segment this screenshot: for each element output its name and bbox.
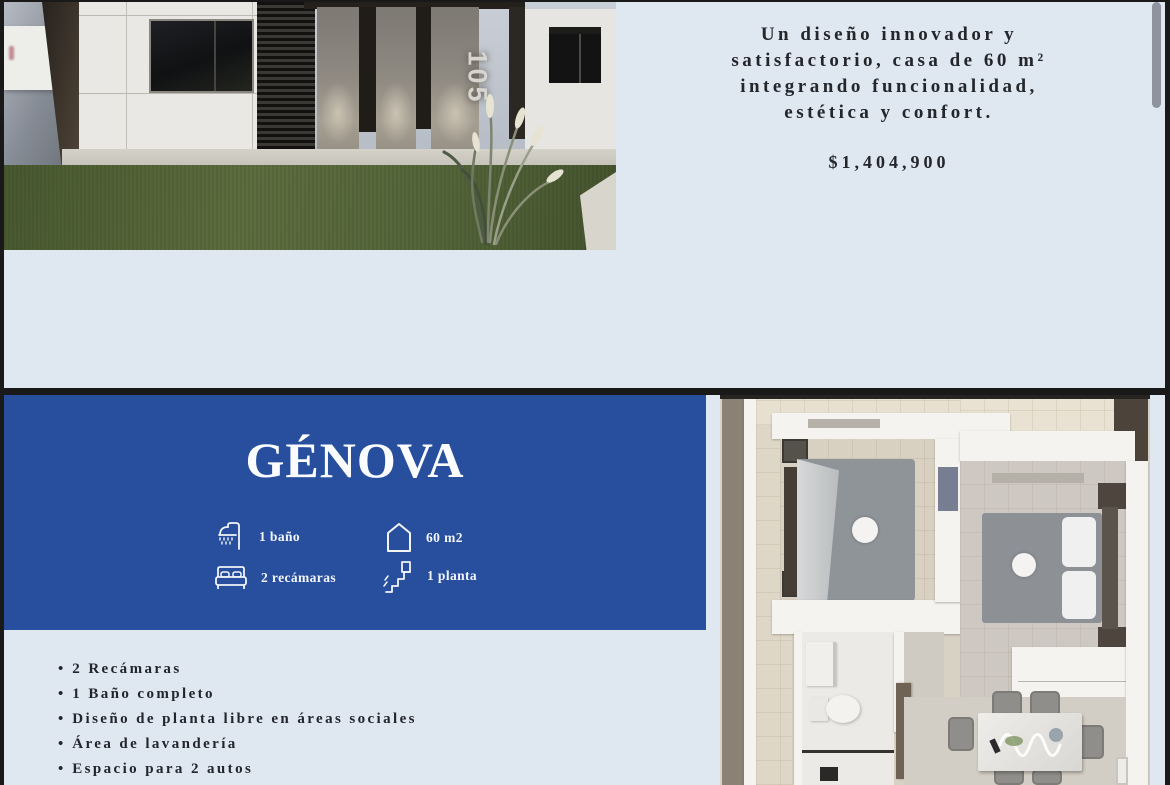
bedroom1-vent (808, 419, 880, 428)
feature-label: 1 baño (259, 529, 300, 545)
bullet-marker: • (58, 711, 63, 727)
exterior-wall-strip (722, 399, 744, 785)
bullet-item: •1 Baño completo (58, 686, 417, 702)
dining-chair (948, 717, 974, 751)
bullet-item: •Espacio para 2 autos (58, 761, 417, 777)
bullet-item: •Área de lavandería (58, 736, 417, 752)
bullet-text: Área de lavandería (72, 736, 237, 752)
bed2-pillow (1062, 517, 1096, 567)
house-icon (385, 522, 413, 554)
feature-floors: 1 planta (382, 558, 477, 594)
right-window (549, 27, 601, 83)
bed2-nightstand (1098, 483, 1128, 509)
kitchen-counter (1012, 647, 1134, 697)
bullet-item: •2 Recámaras (58, 661, 417, 677)
pillar-gap (359, 7, 376, 132)
pedestrian-figure (9, 46, 14, 60)
facade-panel-wall (79, 2, 261, 162)
concrete-pillar (317, 7, 359, 154)
screenshot-root: { "colors": { "accent_blue": "#274f9e", … (0, 0, 1170, 785)
headline-line: integrando funcionalidad, (652, 74, 1126, 100)
bed1-headboard (784, 467, 797, 595)
window-pane-divider (579, 34, 581, 83)
floor-plan-render (720, 395, 1150, 785)
bed2-pillow (1062, 571, 1096, 619)
outer-wall-left (744, 399, 756, 785)
panel-seam (126, 2, 127, 162)
entry-louvers (257, 2, 315, 149)
bed2-headboard (1102, 507, 1118, 629)
bullet-item: •Diseño de planta libre en áreas sociale… (58, 711, 417, 727)
headline-line: Un diseño innovador y (652, 22, 1126, 48)
toilet-bowl (826, 695, 860, 723)
ornamental-grass-plant (424, 92, 569, 250)
bed-icon (214, 563, 248, 593)
shower-icon (216, 521, 246, 553)
model-title: GÉNOVA (4, 431, 706, 489)
shower-glass (802, 750, 894, 753)
counter-seam (1018, 681, 1128, 682)
bathroom-vanity (806, 642, 836, 686)
feature-label: 1 planta (427, 568, 477, 584)
bullet-text: Diseño de planta libre en áreas sociales (72, 711, 417, 727)
window-pane-divider (214, 21, 216, 91)
bathroom-left-wall (794, 632, 802, 785)
model-header-panel: GÉNOVA 1 baño 60 m2 (4, 395, 706, 630)
brochure-page-1: 105 (4, 2, 1165, 388)
brochure-page-2: GÉNOVA 1 baño 60 m2 (4, 395, 1165, 785)
concrete-pillar (376, 7, 416, 154)
center-wall (935, 439, 961, 602)
shower-fixture (820, 767, 838, 781)
bullet-marker: • (58, 736, 63, 752)
bullet-marker: • (58, 761, 63, 777)
feature-label: 2 recámaras (261, 570, 336, 586)
feature-bedrooms: 2 recámaras (214, 563, 336, 593)
panel-seam (79, 15, 261, 16)
panel-seam (79, 93, 261, 94)
bed2-round-pillow (1012, 553, 1036, 577)
bullet-marker: • (58, 686, 63, 702)
feature-bullet-list: •2 Recámaras •1 Baño completo •Diseño de… (58, 661, 417, 785)
bullet-text: 1 Baño completo (72, 686, 215, 702)
bedroom-door (938, 467, 958, 511)
intro-text-block: Un diseño innovador y satisfactorio, cas… (652, 22, 1126, 173)
bullet-marker: • (58, 661, 63, 677)
feature-bath: 1 baño (216, 521, 300, 553)
dining-chair (1032, 769, 1062, 785)
headline-line: estética y confort. (652, 100, 1126, 126)
house-photo: 105 (4, 2, 616, 250)
entry-door (1116, 757, 1128, 785)
feature-label: 60 m2 (426, 530, 463, 546)
bullet-text: 2 Recámaras (72, 661, 181, 677)
table-runner-decor (978, 713, 1082, 771)
bullet-text: Espacio para 2 autos (72, 761, 253, 777)
bedroom2-vent (992, 473, 1084, 483)
vertical-scrollbar-thumb[interactable] (1152, 2, 1161, 108)
headline-line: satisfactorio, casa de 60 m² (652, 48, 1126, 74)
stairs-icon (382, 558, 414, 594)
facade-window (149, 19, 254, 93)
bedroom1-bottom-wall (772, 600, 964, 634)
dining-table (978, 713, 1082, 771)
feature-area: 60 m2 (385, 522, 463, 554)
bed1-round-pillow (852, 517, 878, 543)
bedroom2-top-wall (960, 431, 1135, 461)
outer-wall-right (1126, 461, 1148, 785)
price: $1,404,900 (652, 152, 1126, 173)
